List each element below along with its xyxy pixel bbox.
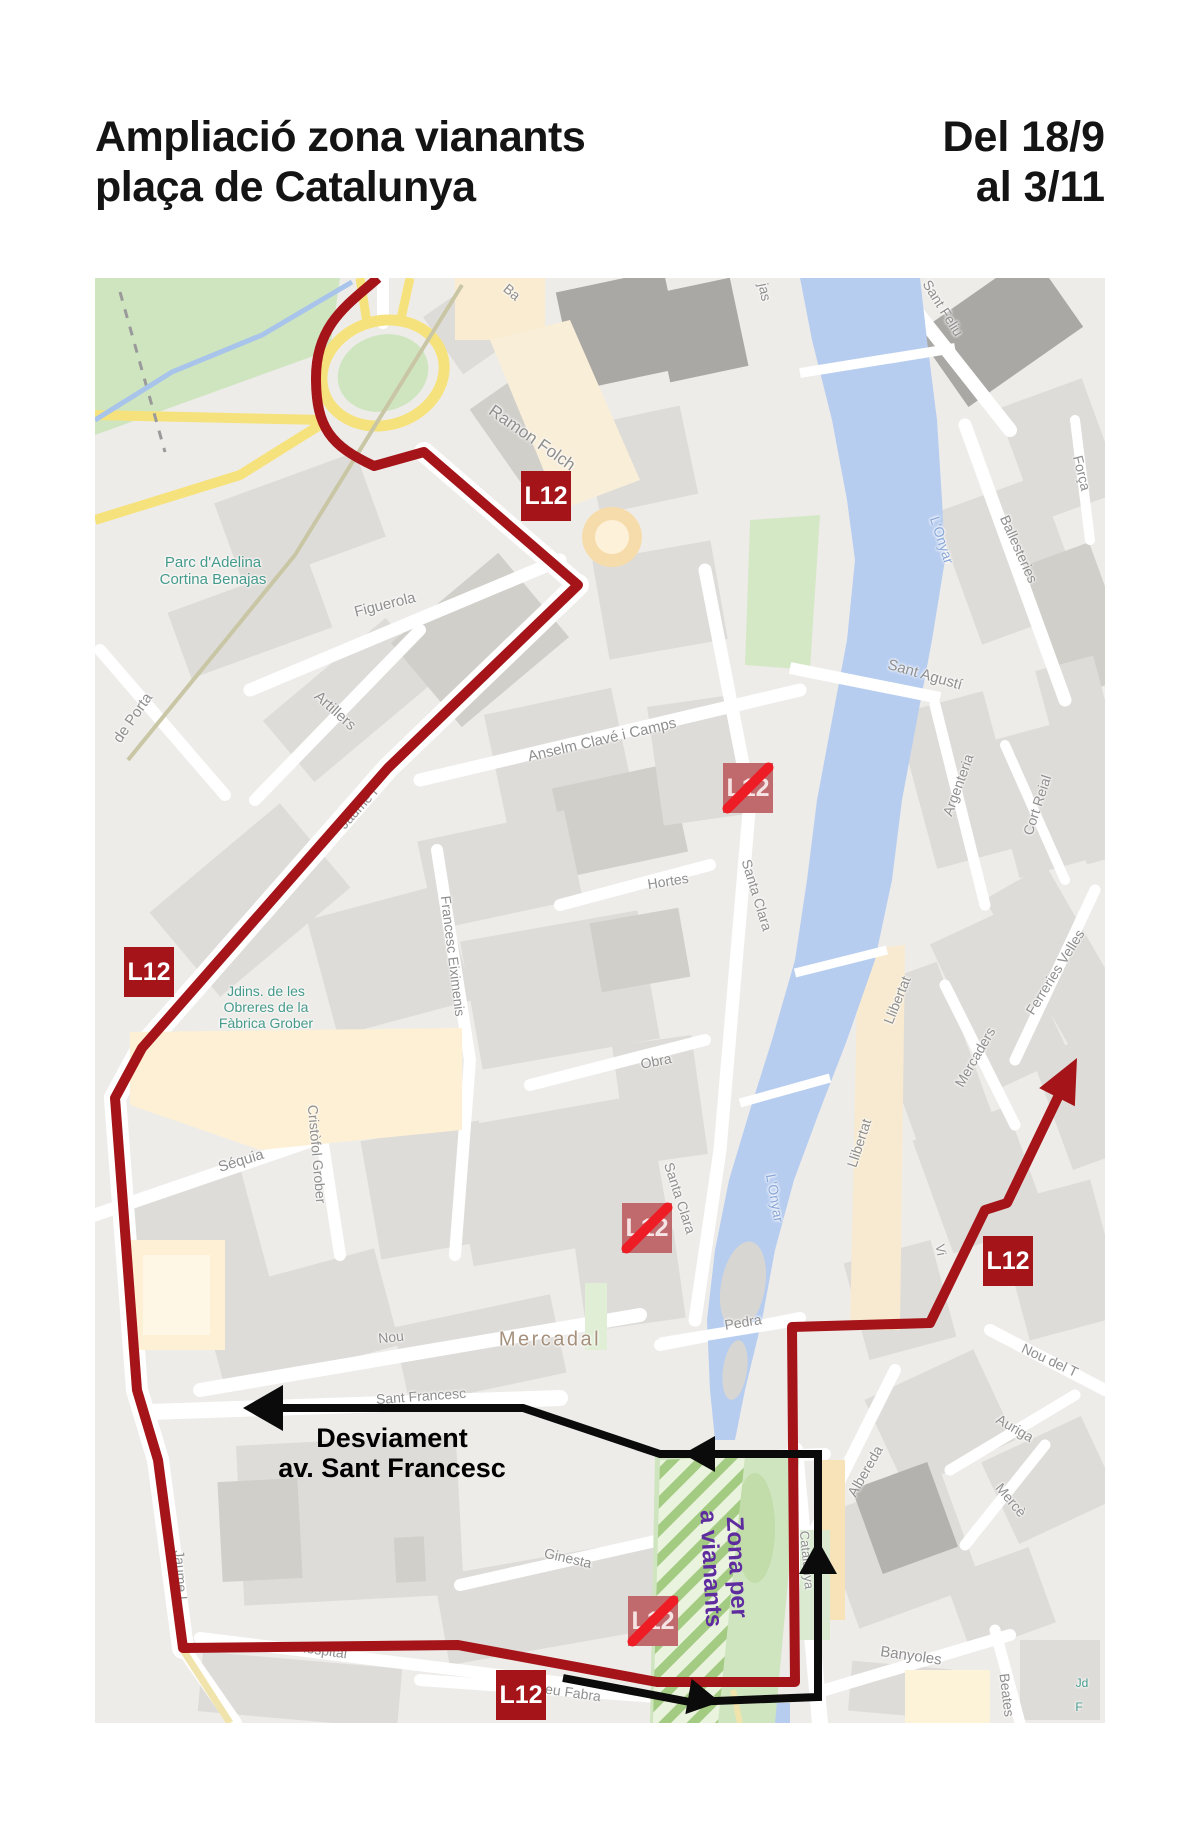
bus-line-label: L12	[524, 482, 567, 511]
bus-line-label: L12	[631, 1607, 674, 1636]
date-range: Del 18/9 al 3/11	[942, 112, 1105, 213]
bus-stop-badge: L12	[983, 1236, 1033, 1286]
bus-stop-badge: L12	[124, 947, 174, 997]
cancelled-bus-stop-badge: L12	[628, 1596, 678, 1646]
infographic-page: Ampliació zona vianants plaça de Catalun…	[0, 0, 1200, 1826]
bus-stop-badge: L12	[521, 471, 571, 521]
bus-line-label: L12	[127, 958, 170, 987]
bus-line-label: L12	[726, 774, 769, 803]
cancelled-bus-stop-badge: L12	[622, 1203, 672, 1253]
cancelled-bus-stop-badge: L12	[723, 763, 773, 813]
date-line-1: Del 18/9	[942, 112, 1105, 162]
page-title: Ampliació zona vianants plaça de Catalun…	[95, 112, 585, 213]
date-line-2: al 3/11	[942, 162, 1105, 212]
city-map: Ramon FolchFiguerolaArtillersde PortaAns…	[95, 278, 1105, 1723]
bus-stop-badge: L12	[496, 1670, 546, 1720]
badges-layer: L12L12L12L12L12L12L12	[95, 278, 1105, 1723]
bus-line-label: L12	[625, 1214, 668, 1243]
title-line-2: plaça de Catalunya	[95, 162, 585, 212]
bus-line-label: L12	[986, 1247, 1029, 1276]
bus-line-label: L12	[499, 1681, 542, 1710]
title-line-1: Ampliació zona vianants	[95, 112, 585, 162]
